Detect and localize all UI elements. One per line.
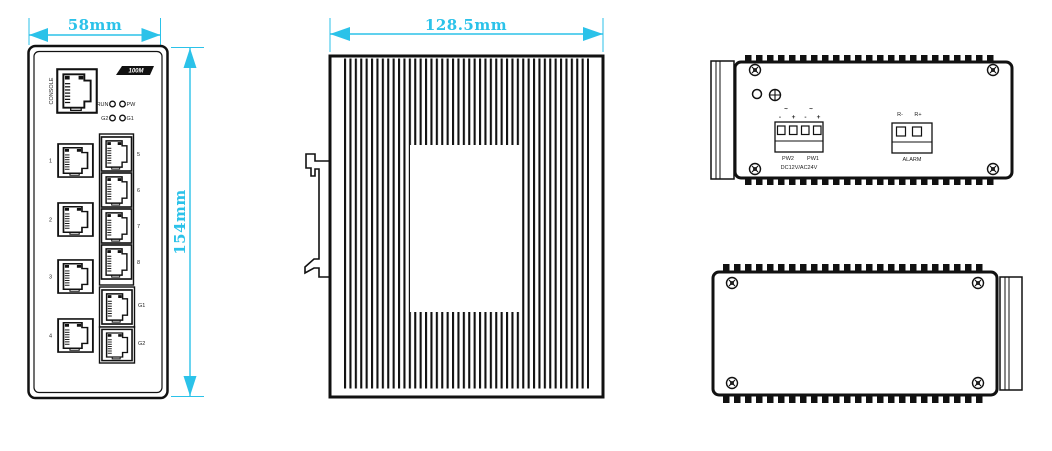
port-g1 xyxy=(102,290,132,324)
screw-icon xyxy=(988,65,999,76)
relay-minus-label: R- xyxy=(897,112,903,118)
screw-icon xyxy=(973,278,984,289)
port-4-label: 4 xyxy=(49,334,52,340)
led-run-icon xyxy=(110,101,116,107)
screw-icon xyxy=(988,164,999,175)
console-port xyxy=(57,69,96,112)
din-flange-right xyxy=(1000,277,1022,390)
terminal-pin xyxy=(913,127,922,136)
power-rating-label: DC12V/AC24V xyxy=(781,165,818,171)
pw1-label: PW1 xyxy=(807,156,819,162)
arrowhead-right-icon xyxy=(142,28,161,42)
ground-screw-icon xyxy=(770,90,781,101)
mounting-hole-icon xyxy=(753,90,762,99)
speed-badge-label: 100M xyxy=(128,69,144,75)
din-rail-clip xyxy=(305,154,330,277)
polarity-mark: + xyxy=(792,114,796,121)
port-g2-label: G2 xyxy=(138,341,145,347)
front-width-dim-label: 58mm xyxy=(68,16,123,34)
polarity-mark: + xyxy=(817,114,821,121)
ac-symbol: ~ xyxy=(784,106,788,113)
front-height-dimension: 154mm xyxy=(171,48,204,397)
side-view: 128.5mm xyxy=(290,0,620,451)
screw-icon xyxy=(727,378,738,389)
ac-symbol: ~ xyxy=(809,106,813,113)
led-g2-icon xyxy=(110,115,116,121)
port-6-label: 6 xyxy=(137,188,140,194)
pw2-label: PW2 xyxy=(782,156,794,162)
led-pw-icon xyxy=(120,101,126,107)
arrowhead-down-icon xyxy=(184,376,197,396)
top-body-outline xyxy=(735,62,1012,178)
side-width-dim-label: 128.5mm xyxy=(425,16,507,34)
terminal-pin xyxy=(814,126,822,135)
port-column-right: 5 6 7 8 xyxy=(100,134,141,285)
dimension-drawing-canvas: 58mm 154mm CONSOLE 100M RUN PW G2 G1 xyxy=(0,0,1052,451)
port-g1-label: G1 xyxy=(138,303,145,309)
led-g1-icon xyxy=(120,115,126,121)
port-2-label: 2 xyxy=(49,218,52,224)
polarity-mark: - xyxy=(804,114,806,121)
screw-icon xyxy=(750,164,761,175)
port-7 xyxy=(101,209,131,243)
led-g1-label: G1 xyxy=(127,116,134,122)
led-g2-label: G2 xyxy=(101,116,108,122)
port-8-label: 8 xyxy=(137,260,140,266)
top-view: ~ ~ - + - + PW2 PW1 DC12V/AC24V R- R+ AL… xyxy=(690,40,1052,200)
console-label: CONSOLE xyxy=(49,77,55,104)
terminal-pin xyxy=(790,126,798,135)
port-1-label: 1 xyxy=(49,159,52,165)
arrowhead-left-icon xyxy=(330,27,350,41)
terminal-pin xyxy=(897,127,906,136)
front-width-dimension: 58mm xyxy=(29,16,161,45)
port-g2 xyxy=(102,329,132,360)
port-5-label: 5 xyxy=(137,152,140,158)
arrowhead-right-icon xyxy=(583,27,603,41)
port-6 xyxy=(101,173,131,207)
port-2 xyxy=(58,203,93,236)
bottom-body-outline xyxy=(713,272,997,395)
port-5 xyxy=(101,137,131,171)
port-3 xyxy=(58,260,93,293)
arrowhead-left-icon xyxy=(29,28,48,42)
arrowhead-up-icon xyxy=(184,48,197,68)
alarm-label: ALARM xyxy=(903,157,922,163)
din-flange-left xyxy=(711,61,734,179)
bottom-view xyxy=(690,250,1052,451)
relay-plus-label: R+ xyxy=(914,112,921,118)
port-7-label: 7 xyxy=(137,224,140,230)
polarity-mark: - xyxy=(779,114,781,121)
label-area xyxy=(410,145,520,312)
port-4 xyxy=(58,319,93,352)
port-1 xyxy=(58,144,93,177)
screw-icon xyxy=(973,378,984,389)
terminal-pin xyxy=(802,126,810,135)
front-view: 58mm 154mm CONSOLE 100M RUN PW G2 G1 xyxy=(0,0,230,451)
led-pw-label: PW xyxy=(127,102,137,108)
screw-icon xyxy=(750,65,761,76)
port-3-label: 3 xyxy=(49,275,52,281)
terminal-pin xyxy=(778,126,786,135)
side-width-dimension: 128.5mm xyxy=(330,16,603,52)
port-8 xyxy=(101,245,131,279)
led-run-label: RUN xyxy=(97,102,109,108)
front-height-dim-label: 154mm xyxy=(171,189,189,255)
screw-icon xyxy=(727,278,738,289)
